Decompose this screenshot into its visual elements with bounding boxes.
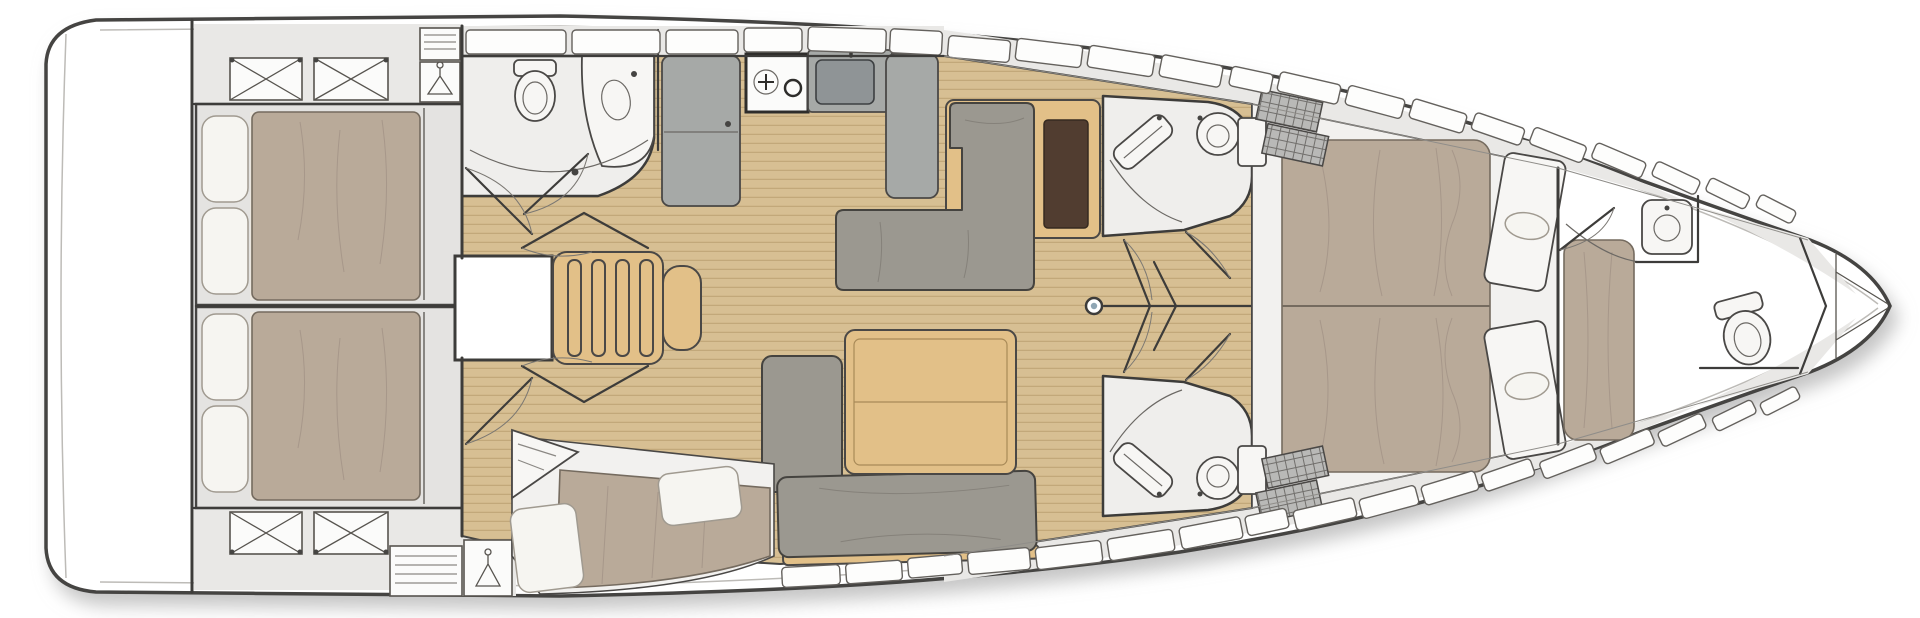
deck-hatch-x-icon [314, 58, 389, 101]
portlight [1759, 386, 1801, 417]
mast-icon [1086, 298, 1102, 314]
portlight [744, 28, 802, 52]
portlight [808, 27, 887, 54]
pillow [202, 208, 248, 294]
portlight [466, 30, 566, 54]
double-berth [252, 312, 420, 500]
galley-counter [886, 54, 938, 198]
hanging-locker [420, 62, 460, 102]
deck-hatch-x-icon [314, 512, 389, 555]
upholstered-bench [1564, 240, 1634, 440]
yacht-floor-plan [0, 0, 1920, 618]
portlight [907, 554, 963, 579]
toilet-icon [1197, 113, 1239, 155]
engine-compartment [455, 256, 552, 360]
hanging-locker [464, 540, 512, 596]
double-berth [252, 112, 420, 300]
aft-cabin-port [196, 104, 462, 305]
portlight [845, 560, 902, 584]
forward-cabin [1238, 90, 1567, 523]
toilet-icon [1197, 457, 1239, 499]
folding-table [1044, 120, 1088, 228]
locker [390, 546, 462, 596]
toilet-icon [514, 60, 556, 121]
deck-hatch-x-icon [230, 58, 303, 101]
pillow [202, 314, 248, 400]
floor-plan-canvas [0, 0, 1920, 618]
portlight [1755, 194, 1797, 225]
deck-hatch-x-icon [230, 512, 303, 555]
portlight [666, 30, 738, 54]
portlight [947, 35, 1011, 62]
refrigerator-icon [662, 56, 740, 206]
portlight [967, 547, 1031, 574]
nightstand [1238, 446, 1266, 494]
aft-cabin-starboard [196, 307, 462, 508]
portlight [782, 564, 841, 587]
stove-icon [746, 54, 808, 112]
dinette-starboard [762, 330, 1039, 565]
locker [420, 28, 460, 60]
portlight [889, 29, 942, 56]
dinette-sofa [777, 471, 1037, 558]
portlight [572, 30, 660, 54]
pillow [202, 116, 248, 202]
pillow [657, 465, 743, 526]
saloon-table [845, 330, 1016, 474]
pillow [509, 502, 585, 593]
steps-icon [553, 252, 701, 364]
pillow [202, 406, 248, 492]
nightstand [1238, 118, 1266, 166]
